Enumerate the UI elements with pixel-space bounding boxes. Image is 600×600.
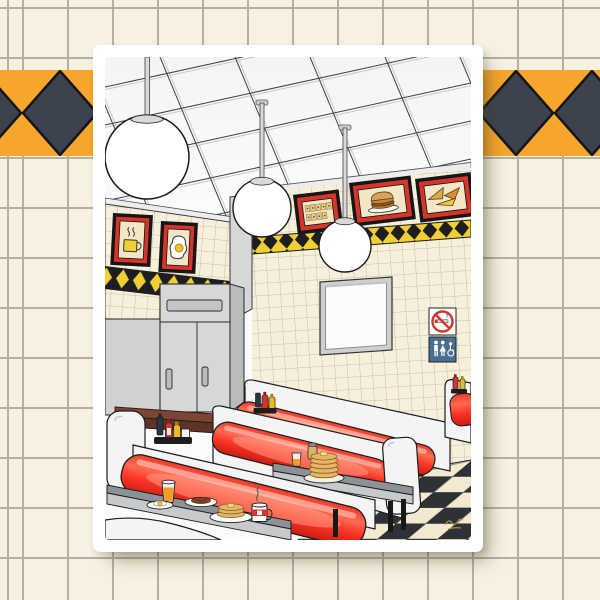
blank-menu-board bbox=[320, 277, 392, 355]
steak-plate bbox=[185, 497, 217, 506]
light-stem bbox=[260, 103, 264, 181]
cabinet-left-box bbox=[105, 319, 160, 415]
table-leg bbox=[401, 499, 406, 530]
burger-picture bbox=[349, 175, 416, 226]
diner-illustration-frame bbox=[105, 57, 471, 540]
butter-pat bbox=[228, 504, 234, 507]
butter-pat bbox=[321, 452, 328, 456]
light-globe bbox=[233, 179, 291, 237]
condiment-set-middle bbox=[254, 392, 277, 414]
light-globe bbox=[319, 220, 371, 272]
diner-art-print bbox=[93, 45, 483, 552]
light-cap bbox=[251, 177, 274, 185]
light-stem bbox=[145, 57, 150, 117]
table-leg bbox=[388, 501, 393, 532]
light-cap bbox=[131, 115, 164, 123]
cabinet-side bbox=[230, 284, 244, 412]
restroom-sign bbox=[429, 337, 456, 362]
cabinet-door-handle-right bbox=[202, 367, 208, 386]
sauce-bottle bbox=[157, 417, 163, 435]
pizza-slices-picture bbox=[415, 172, 471, 222]
no-smoking-sign bbox=[429, 308, 456, 335]
cabinet-vent-slot bbox=[167, 300, 222, 311]
diner-illustration bbox=[105, 57, 471, 540]
table-leg bbox=[333, 509, 338, 537]
cabinet-door-handle-left bbox=[166, 369, 172, 389]
egg-plate bbox=[147, 501, 173, 509]
orange-juice-glass bbox=[162, 480, 175, 502]
coffee-cup-picture bbox=[110, 213, 153, 267]
caddy-tray bbox=[154, 437, 192, 444]
light-globe bbox=[105, 115, 189, 199]
light-cap bbox=[335, 218, 355, 225]
fried-egg-picture bbox=[158, 221, 198, 274]
light-stem bbox=[343, 128, 347, 221]
booth-right-wall bbox=[445, 374, 471, 443]
